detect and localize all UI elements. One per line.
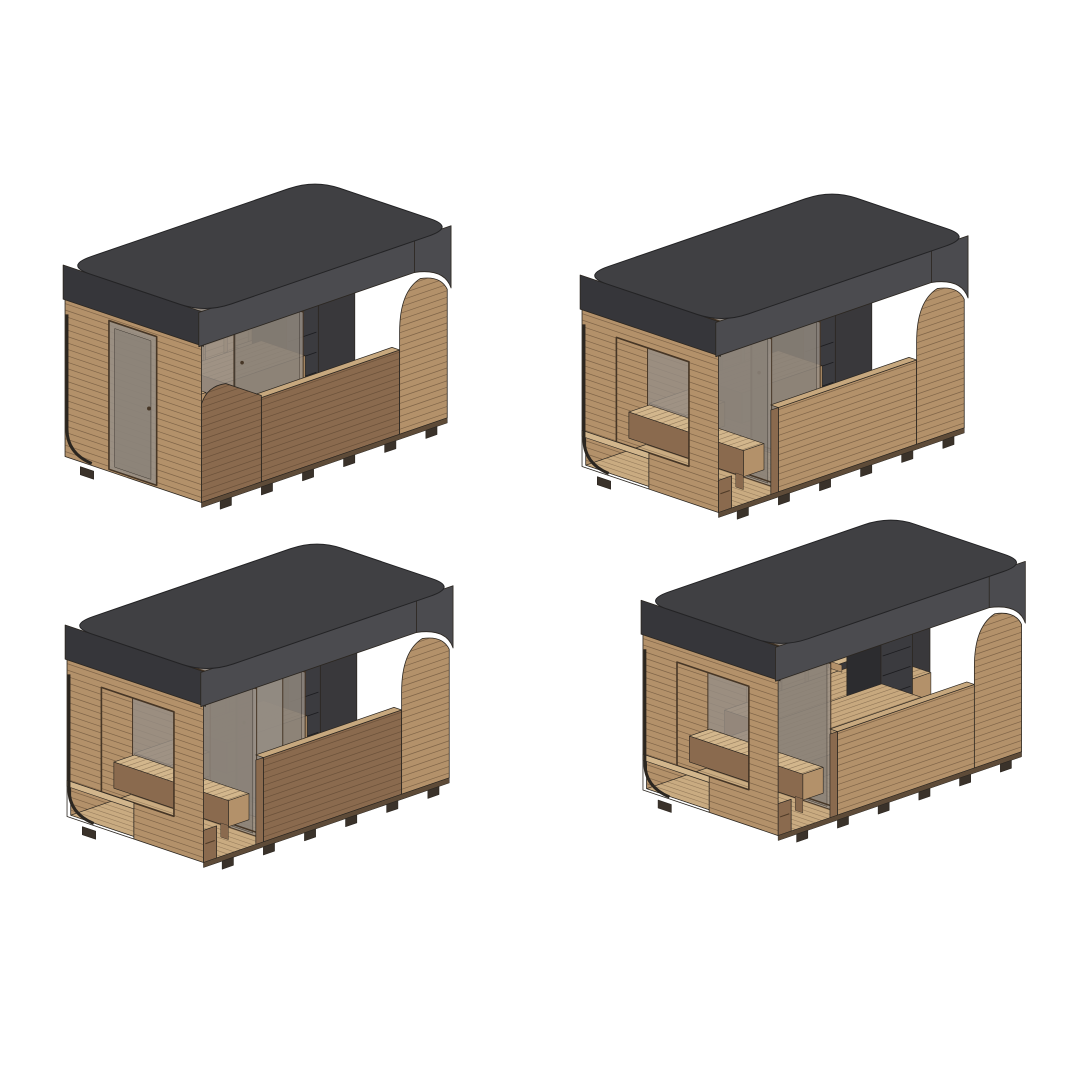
sauna-render-bottom-left	[60, 536, 482, 883]
sauna-render-top-left	[58, 176, 480, 523]
sauna-cutaway-illustration	[575, 186, 997, 533]
sauna-render-bottom-right	[636, 512, 1054, 856]
sauna-cutaway-illustration	[60, 536, 482, 883]
sauna-cutaway-illustration	[58, 176, 480, 523]
sauna-render-top-right	[575, 186, 997, 533]
render-canvas	[0, 0, 1081, 1081]
sauna-cutaway-illustration	[636, 512, 1054, 856]
